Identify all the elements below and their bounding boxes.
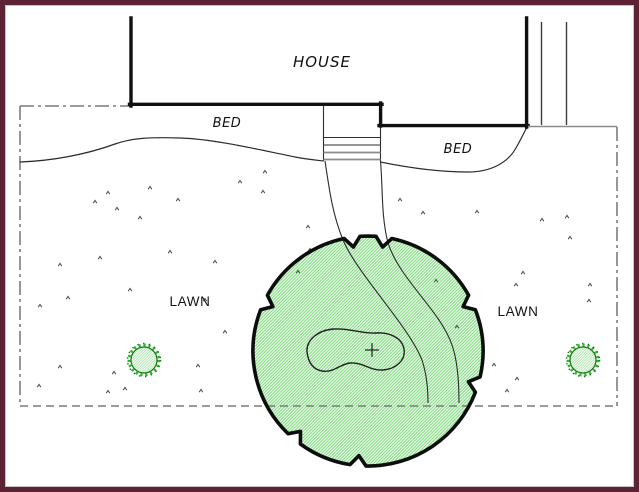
lawn-label-right: LAWN [498, 304, 539, 319]
bed-label-left: BED [213, 116, 242, 131]
bed-edge-left [20, 138, 324, 162]
landscape-plan-page: HOUSE BED BED LAWN LAWN [0, 0, 639, 492]
bed-label-right: BED [444, 142, 473, 157]
house-label: HOUSE [293, 53, 351, 71]
landscape-plan-drawing: HOUSE BED BED LAWN LAWN [0, 0, 639, 492]
shrub-right [567, 344, 600, 377]
steps [324, 105, 381, 161]
shrub-left [128, 344, 161, 377]
property-line-left [20, 106, 131, 406]
lawn-label-left: LAWN [170, 294, 211, 309]
house-outline [130, 18, 618, 127]
